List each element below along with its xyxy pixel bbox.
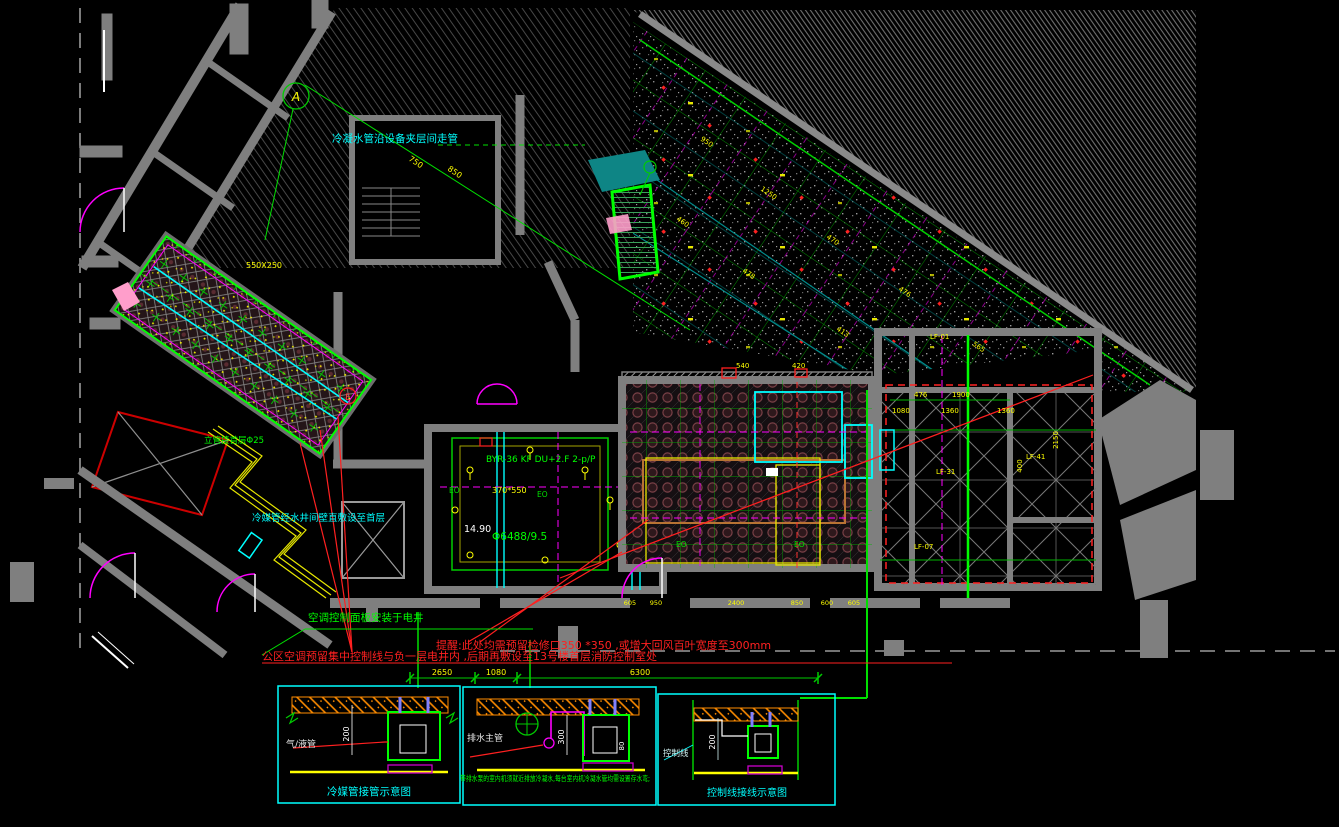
svg-text:EO: EO [449,486,460,495]
svg-text:LF-31: LF-31 [936,468,955,476]
svg-text:850: 850 [791,599,803,607]
box3-title: 控制线接线示意图 [707,786,787,799]
hall-dims-bottom: 605 950 2400 850 600 605 [624,599,860,607]
svg-text:400: 400 [1016,459,1024,472]
svg-text:EO: EO [537,490,548,499]
note-condensate-route: 冷凝水管沿设备夹层间走管 [332,132,458,145]
svg-text:EO: EO [676,540,687,549]
svg-text:605: 605 [848,599,860,607]
gas-liquid-pipe-label: 气/液管 [286,738,316,750]
box2-dim-drop: 300 [557,729,566,744]
svg-text:1360: 1360 [997,407,1015,415]
main-hall [622,368,872,568]
svg-text:605: 605 [624,599,636,607]
note-refrigerant-shaft: 冷媒管经水井间壁直敷设至首层 [252,512,385,524]
svg-text:420: 420 [792,362,805,370]
svg-text:6300: 6300 [630,668,650,677]
svg-text:LF-01: LF-01 [930,333,949,341]
svg-text:950: 950 [650,599,662,607]
svg-text:1080: 1080 [486,668,506,677]
ahu-duct-tag: 550X250 [246,261,282,270]
pipe-spec-label: Φ6488/9.5 [492,531,547,543]
svg-text:2650: 2650 [432,668,452,677]
svg-text:2150: 2150 [1052,431,1060,449]
box2-dim-offset: 80 [618,742,626,751]
svg-text:EO: EO [794,540,805,549]
svg-text:LF-41: LF-41 [1026,453,1045,461]
box1-title: 冷媒管接管示意图 [327,785,411,798]
control-line-label: 控制线 [663,748,689,759]
note-riser: 立管接首层Φ25 [204,435,264,446]
marker-e-label: E [345,393,351,403]
duct-size-label: 370*550 [492,486,527,495]
svg-text:600: 600 [821,599,833,607]
room-equipment-tag: BYR-36 KF DU+2.F 2-p/P [486,455,596,465]
cad-drawing-canvas: A E 冷凝水管沿设备夹层间走管 立管接首层Φ25 冷媒管经水井间壁直敷设至首层… [0,0,1339,827]
level-label: 14.90 [464,524,491,535]
svg-text:1080: 1080 [892,407,910,415]
svg-text:1900: 1900 [952,391,970,399]
box3-dim: 200 [708,734,717,749]
box2-note: 带排水泵的室内机须就近排放冷凝水,每台室内机冷凝水管均需设置存水弯; [460,773,650,783]
marker-a-label: A [291,90,300,104]
svg-text:LF-07: LF-07 [914,543,933,551]
box1-dim: 200 [342,726,351,741]
svg-text:476: 476 [914,391,928,399]
svg-text:2400: 2400 [728,599,745,607]
warning-control-text: 公区空调预留集中控制线与负一层电井内 ,后期再敷设至13号楼首层消防控制室处 [262,649,657,663]
svg-text:540: 540 [736,362,749,370]
note-control-panel: 空调控制面板安装于电井 [308,611,424,624]
svg-text:1360: 1360 [941,407,959,415]
floor-plan-svg: A E 冷凝水管沿设备夹层间走管 立管接首层Φ25 冷媒管经水井间壁直敷设至首层… [0,0,1339,827]
drain-main-label: 排水主管 [467,732,503,744]
